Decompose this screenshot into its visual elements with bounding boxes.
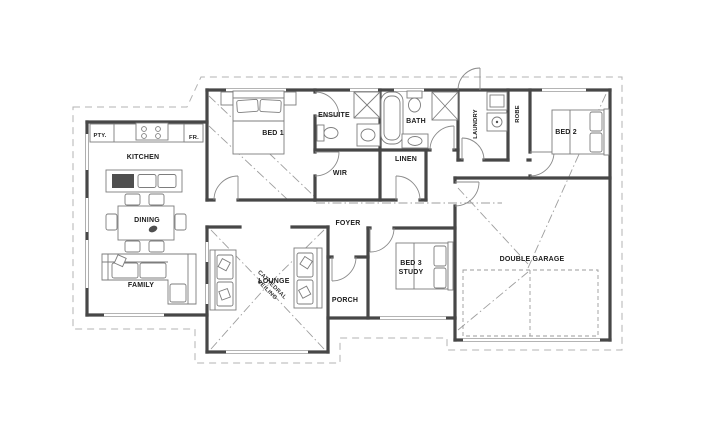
toilet-icon [317,125,338,141]
floor-plan-drawing: PTY. KITCHEN FR. DINING FAMILY LOUNGE BE… [0,0,705,438]
lounge-ceiling-note: CATHEDRAL CEILING [251,270,287,306]
window [205,242,209,262]
linen-door-arc [396,176,420,200]
bed2-door-arc [530,152,554,176]
room-label-bed3-line2: STUDY [399,269,424,276]
dining-chair-icon [106,214,117,230]
lounge-sofa-icon [210,250,236,310]
dining-chair-icon [149,241,164,252]
shower-icon [354,92,380,118]
vanity-icon [357,124,380,146]
cooktop-icon [136,123,168,140]
window [542,88,586,92]
window [380,316,446,320]
garage-door-opening [463,338,600,342]
vanity-icon [402,134,428,148]
bed-icon [233,91,284,154]
dining-chair-icon [125,241,140,252]
room-label-robe: ROBE [515,105,521,123]
room-label-bed1: BED 1 [262,130,284,137]
window [104,313,164,317]
bathtub-icon [381,92,403,144]
garage-door-arc [455,182,479,206]
room-label-wir: WIR [333,170,347,177]
room-label-dining: DINING [134,217,160,224]
laundry-fixtures [487,92,507,131]
bedside-table-icon [221,92,233,105]
floor-plan-page: PTY. KITCHEN FR. DINING FAMILY LOUNGE BE… [0,0,705,438]
window [85,134,89,170]
lounge-sofa-icon [294,248,322,308]
room-label-bed2: BED 2 [555,129,577,136]
window [85,198,89,232]
bed1-door-arc [214,176,238,200]
room-label-family: FAMILY [128,282,154,289]
bedside-table-icon [284,92,296,105]
toilet-icon [407,91,422,112]
car-bay-markings [463,270,598,336]
room-label-porch: PORCH [332,297,358,304]
front-door-arc [332,257,356,281]
window [226,350,308,354]
bed3-door-arc [370,228,394,252]
room-label-bed3-line1: BED 3 [400,260,422,267]
washing-machine-icon [487,113,507,131]
laundry-tub-icon [487,92,507,110]
window [85,240,89,288]
room-label-linen: LINEN [395,156,417,163]
shower-icon [432,92,458,120]
island-bench-icon [106,170,182,192]
dining-chair-icon [125,194,140,205]
window [350,88,378,92]
dining-chair-icon [175,214,186,230]
bath-door-arc [430,126,454,150]
room-label-garage: DOUBLE GARAGE [500,256,565,263]
family-sofa-icon [102,254,196,304]
room-label-foyer: FOYER [335,220,360,227]
room-label-pty: PTY. [93,133,106,139]
dining-chair-icon [149,194,164,205]
ensuite-fixtures [317,92,380,146]
laundry-exterior-door-arc [458,68,480,90]
room-label-bath: BATH [406,118,426,125]
room-label-ensuite: ENSUITE [318,112,350,119]
window [205,284,209,304]
room-label-laundry: LAUNDRY [473,109,479,139]
room-label-fr: FR. [189,135,199,141]
bed1-furniture [221,91,296,154]
room-label-kitchen: KITCHEN [127,154,160,161]
laundry-door-arc [462,138,484,160]
